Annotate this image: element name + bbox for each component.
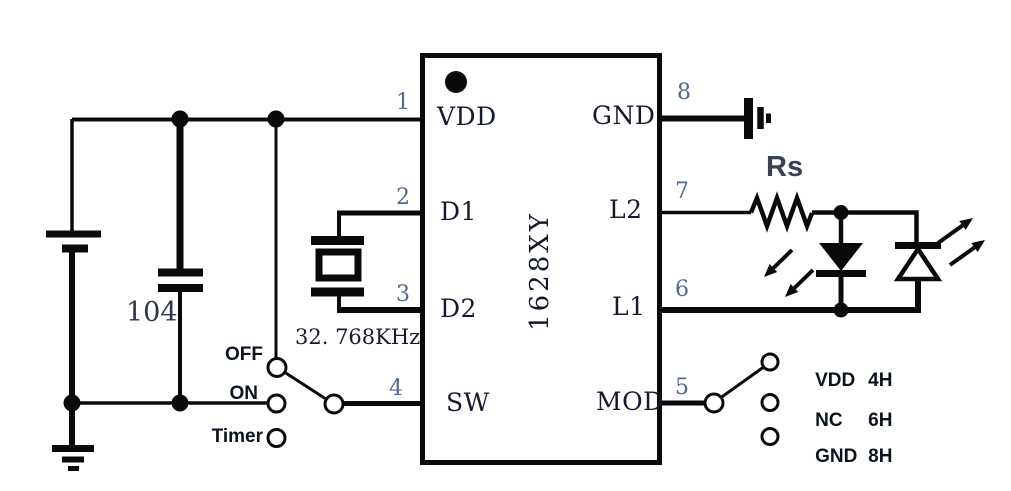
led1-triangle [819, 243, 863, 271]
resistor-zigzag [751, 198, 812, 226]
battery-icon [46, 119, 101, 403]
off-terminal [268, 359, 286, 377]
led2-emission-arrows [938, 218, 985, 265]
mod-terminal-nc [762, 395, 778, 411]
power-switch-label-on: ON [188, 384, 258, 403]
pin1-indicator-dot [445, 71, 467, 93]
pin-number-8: 8 [677, 82, 701, 104]
capacitor-value-label: 104 [126, 299, 178, 326]
pin-label-vdd: VDD [437, 104, 497, 129]
pin-number-3: 3 [386, 284, 410, 306]
mod-terminal-gnd [762, 429, 778, 445]
on-terminal [268, 395, 285, 412]
led2-icon [895, 218, 985, 310]
mod-pole [705, 394, 723, 412]
mod-terminal-vdd [762, 354, 778, 370]
switch-blade [285, 373, 326, 400]
mode-option-gnd-8h: GND8H [794, 428, 892, 485]
power-switch-label-off: OFF [193, 345, 263, 364]
led-top-wire [812, 213, 917, 245]
pin-number-2: 2 [386, 187, 410, 209]
pin-number-1: 1 [386, 92, 410, 114]
pin-number-4: 4 [379, 378, 403, 400]
pin-label-l1: L1 [612, 294, 646, 319]
gnd-pin-ground-icon [659, 98, 769, 139]
timer-terminal [268, 430, 285, 447]
mode-option-name: VDD [815, 371, 868, 390]
pin-number-6: 6 [675, 279, 699, 301]
switch-pole [325, 395, 343, 413]
pin-number-5: 5 [675, 377, 699, 399]
led1-icon [764, 212, 866, 308]
crystal-body [319, 252, 358, 278]
led1-emission-arrows [764, 250, 813, 297]
mode-option-duration: 4H [868, 370, 892, 391]
series-resistor-label: Rs [766, 153, 803, 182]
led2-triangle [898, 249, 938, 279]
junction-dot [64, 395, 81, 412]
junction-dot [172, 111, 189, 128]
pin-label-l2: L2 [609, 197, 643, 222]
mod-blade [721, 368, 763, 398]
pin-label-d2: D2 [440, 296, 477, 321]
power-switch-label-timer: Timer [193, 427, 263, 446]
pin-label-mod: MOD [596, 389, 664, 414]
mode-option-name: GND [815, 447, 868, 466]
pin-number-7: 7 [675, 181, 699, 203]
pin-label-d1: D1 [440, 199, 477, 224]
crystal-frequency-label: 32. 768KHz [295, 327, 420, 348]
pin-label-sw: SW [446, 390, 490, 415]
mode-option-duration: 8H [868, 446, 892, 467]
schematic-canvas: 1 2 3 4 8 7 6 5 VDD GND D1 L2 D2 L1 SW M… [0, 0, 1011, 491]
ground-icon [52, 403, 94, 469]
pin-label-gnd: GND [592, 103, 655, 128]
ic-part-number: 1628XY [525, 211, 555, 331]
junction-dot [834, 303, 849, 318]
junction-dot [172, 395, 189, 412]
